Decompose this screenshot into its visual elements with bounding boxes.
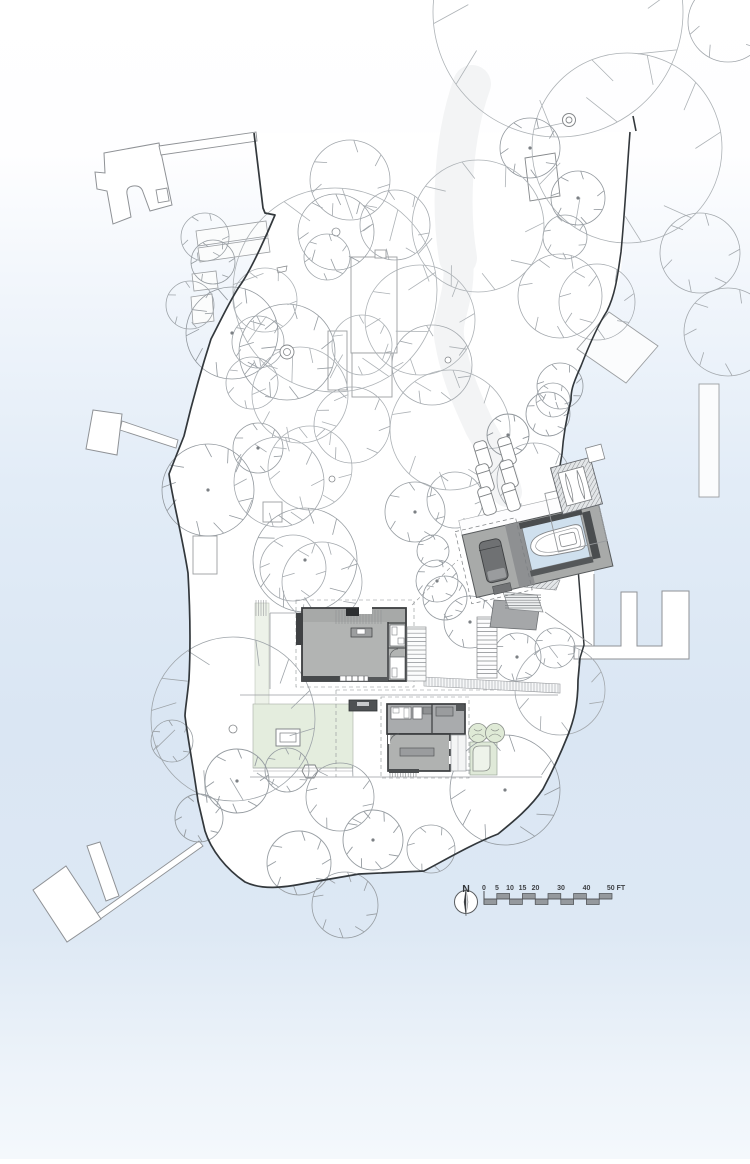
svg-text:10: 10 (506, 885, 514, 892)
svg-text:30: 30 (557, 885, 565, 892)
svg-text:0: 0 (482, 885, 486, 892)
svg-text:40: 40 (583, 885, 591, 892)
svg-text:20: 20 (532, 885, 540, 892)
svg-text:50 FT: 50 FT (607, 885, 626, 892)
svg-text:5: 5 (495, 885, 499, 892)
svg-text:15: 15 (519, 885, 527, 892)
